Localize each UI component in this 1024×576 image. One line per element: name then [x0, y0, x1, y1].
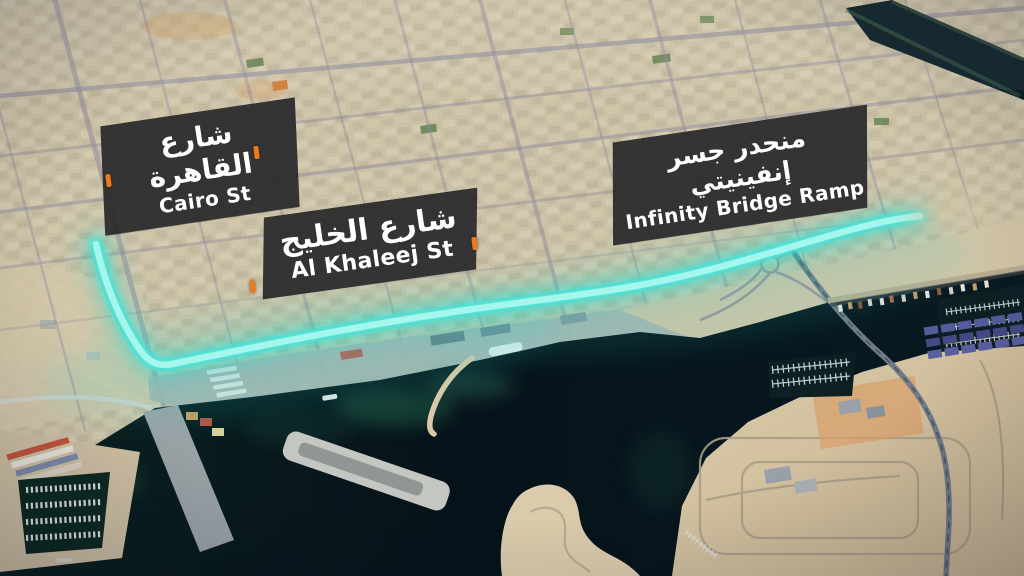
aerial-map-view: شارع القاهرة Cairo St شارع الخليج Al Kha… [0, 0, 1024, 576]
satellite-map [0, 0, 1024, 576]
top-haze [0, 0, 1024, 90]
